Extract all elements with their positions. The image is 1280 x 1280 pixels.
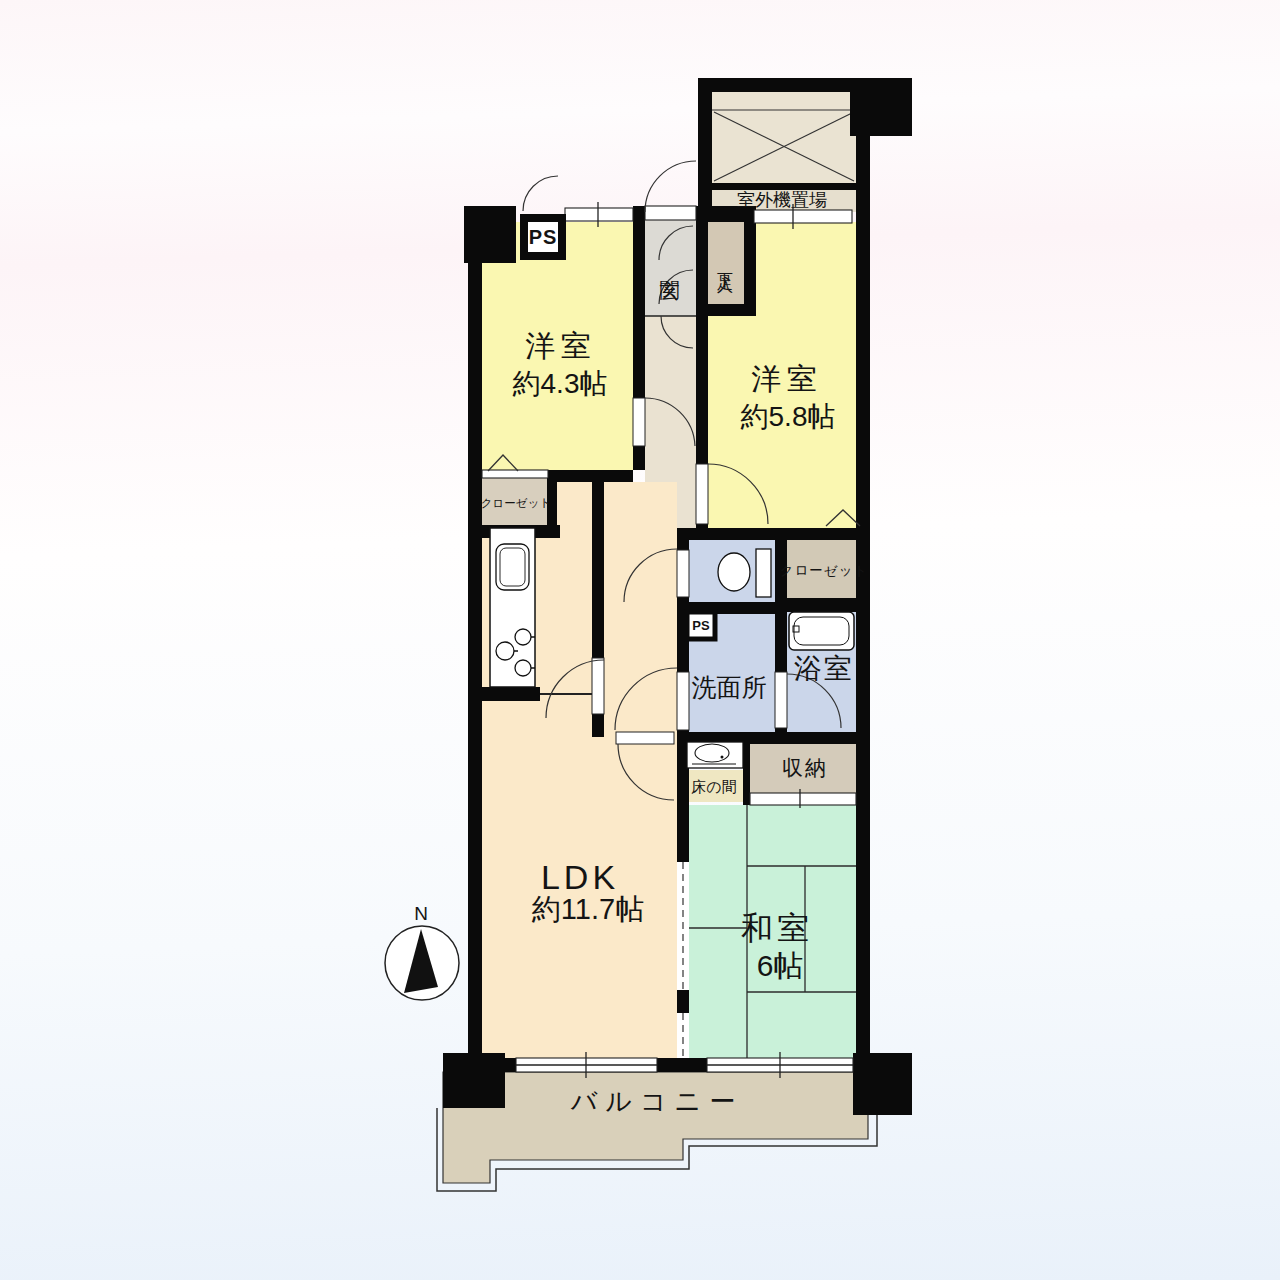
pipe-shaft-upper (524, 218, 562, 256)
storage-sliding-door (750, 793, 856, 805)
closet-right (787, 540, 856, 598)
shoe-cabinet (708, 222, 744, 304)
outdoor-unit-void (712, 90, 856, 183)
door-bathroom (775, 672, 787, 728)
pillar-bottom-right (853, 1053, 912, 1115)
floor-plan: 室外機置場 PS 玄関 下足入 洋室 約4.3帖 洋室 約5.8帖 クローゼット… (0, 0, 1280, 1280)
pipe-shaft-lower (687, 612, 715, 639)
compass (385, 926, 459, 1000)
door-kitchen (592, 658, 604, 714)
door-western-4-3 (633, 398, 645, 446)
tokonoma-alcove (687, 770, 743, 802)
pillar-bottom-left (443, 1053, 505, 1108)
balcony-floor (443, 1072, 868, 1183)
floor-plan-drawing (0, 0, 1280, 1280)
pillar-ps (464, 206, 516, 263)
door-ldk (616, 732, 674, 744)
front-door-opening (645, 206, 696, 220)
ps-door-arc (523, 176, 558, 211)
closet-left-opening (482, 470, 548, 478)
pillar-top-right (850, 78, 912, 136)
closet-left (482, 478, 548, 525)
toilet-tank (756, 549, 771, 597)
sliding-partition (677, 862, 689, 1058)
door-washroom (677, 672, 689, 730)
room-entrance (645, 216, 696, 316)
room-japanese (689, 805, 856, 1058)
wash-basin (695, 744, 729, 762)
storage-closet (750, 744, 856, 793)
window-western-4-3 (565, 208, 633, 221)
toilet-bowl (718, 553, 750, 591)
door-toilet (677, 550, 689, 597)
front-door-arc (645, 161, 696, 212)
window-western-5-8 (754, 210, 852, 223)
door-western-5-8 (696, 464, 708, 524)
